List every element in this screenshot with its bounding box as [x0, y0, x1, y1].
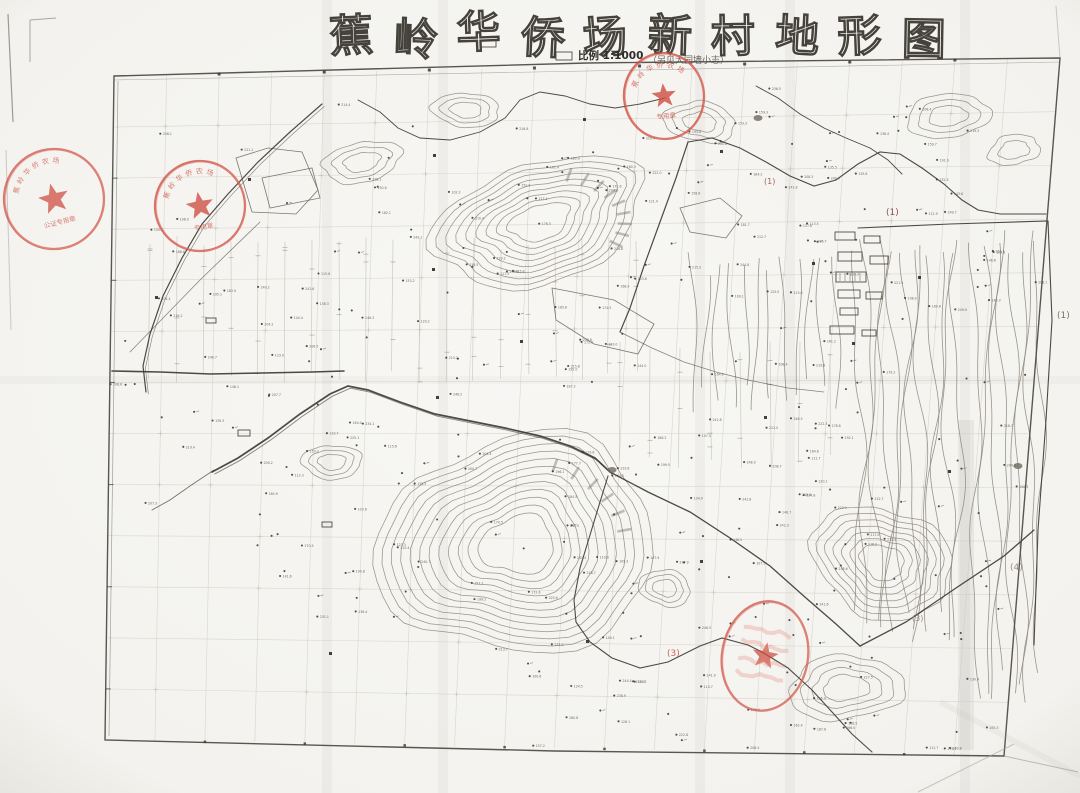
topographic-map-canvas: 183.0144.4143.6215.2120.0222.8103.6247.9… [0, 0, 1080, 793]
svg-text:108.0: 108.0 [180, 217, 189, 221]
solid-mark [432, 268, 435, 271]
svg-text:174.5: 174.5 [602, 306, 611, 310]
scanned-topographic-map-page: 183.0144.4143.6215.2120.0222.8103.6247.9… [0, 0, 1080, 793]
sheet-number-annotation: (1) [764, 177, 775, 186]
border-tick [533, 67, 536, 70]
svg-text:166.9: 166.9 [817, 697, 826, 701]
svg-text:107.9: 107.9 [650, 556, 659, 560]
svg-text:195.1: 195.1 [213, 292, 222, 296]
svg-text:135.8: 135.8 [858, 172, 867, 176]
svg-text:238.6: 238.6 [839, 567, 848, 571]
svg-text:180.8: 180.8 [569, 716, 578, 720]
svg-text:164.6: 164.6 [810, 449, 819, 453]
svg-text:196.1: 196.1 [555, 470, 564, 474]
svg-text:139.3: 139.3 [215, 419, 224, 423]
svg-text:144.4: 144.4 [294, 316, 303, 320]
svg-text:164.0: 164.0 [353, 421, 362, 425]
svg-text:109.3: 109.3 [619, 560, 628, 564]
svg-text:200.7: 200.7 [468, 467, 477, 471]
svg-text:183.9: 183.9 [227, 289, 236, 293]
svg-text:141.6: 141.6 [283, 574, 292, 578]
svg-text:240.2: 240.2 [261, 285, 270, 289]
svg-text:148.1: 148.1 [230, 385, 239, 389]
svg-text:208.4: 208.4 [750, 746, 759, 750]
svg-text:191.9: 191.9 [940, 158, 949, 162]
svg-text:111.7: 111.7 [811, 456, 820, 460]
sheet-number-annotation: (3) [912, 614, 923, 623]
svg-text:177.7: 177.7 [572, 461, 581, 465]
svg-text:137.6: 137.6 [803, 224, 812, 228]
svg-text:188.8: 188.8 [176, 250, 185, 254]
svg-text:121.4: 121.4 [649, 199, 658, 203]
svg-text:244.4: 244.4 [623, 679, 632, 683]
svg-text:169.8: 169.8 [932, 305, 941, 309]
svg-text:225.1: 225.1 [350, 436, 359, 440]
svg-text:241.8: 241.8 [742, 497, 751, 501]
title-character: 图 [901, 14, 946, 66]
svg-text:187.6: 187.6 [817, 727, 826, 731]
svg-text:242.3: 242.3 [780, 524, 789, 528]
svg-text:242.8: 242.8 [713, 418, 722, 422]
svg-text:204.4: 204.4 [161, 297, 170, 301]
svg-text:217.0: 217.0 [870, 533, 879, 537]
svg-text:244.8: 244.8 [740, 263, 749, 267]
solid-mark [436, 396, 439, 399]
svg-text:138.4: 138.4 [880, 132, 889, 136]
svg-text:218.6: 218.6 [802, 493, 811, 497]
svg-text:179.2: 179.2 [886, 370, 895, 374]
border-tick [428, 69, 431, 72]
svg-text:219.4: 219.4 [186, 445, 195, 449]
svg-text:233.0: 233.0 [554, 643, 563, 647]
svg-text:154.5: 154.5 [615, 474, 624, 478]
svg-text:216.8: 216.8 [519, 127, 528, 131]
svg-text:208.3: 208.3 [804, 175, 813, 179]
svg-text:212.0: 212.0 [769, 426, 778, 430]
svg-text:210.4: 210.4 [475, 216, 484, 220]
svg-text:129.2: 129.2 [421, 320, 430, 324]
svg-text:117.4: 117.4 [538, 197, 547, 201]
svg-text:198.3: 198.3 [1019, 485, 1028, 489]
svg-text:178.8: 178.8 [832, 424, 841, 428]
svg-text:116.0: 116.0 [868, 542, 877, 546]
svg-text:108.4: 108.4 [922, 107, 931, 111]
svg-text:115.6: 115.6 [388, 444, 397, 448]
border-tick [953, 59, 956, 62]
svg-text:213.7: 213.7 [499, 647, 508, 651]
svg-text:218.7: 218.7 [1004, 424, 1013, 428]
svg-text:183.9: 183.9 [571, 156, 580, 160]
svg-text:120.1: 120.1 [818, 480, 827, 484]
svg-text:150.6: 150.6 [377, 186, 386, 190]
svg-text:190.8: 190.8 [356, 570, 365, 574]
svg-text:120.0: 120.0 [770, 290, 779, 294]
svg-text:134.0: 134.0 [694, 496, 703, 500]
svg-text:204.6: 204.6 [609, 189, 618, 193]
svg-text:153.3: 153.3 [310, 450, 319, 454]
svg-text:192.1: 192.1 [845, 436, 854, 440]
svg-text:146.6: 146.6 [987, 258, 996, 262]
svg-text:108.9: 108.9 [908, 296, 917, 300]
svg-text:163.4: 163.4 [793, 724, 802, 728]
title-character: 地 [774, 10, 821, 63]
svg-text:248.0: 248.0 [747, 461, 756, 465]
svg-text:222.1: 222.1 [838, 506, 847, 510]
svg-text:241.6: 241.6 [819, 603, 828, 607]
svg-text:181.7: 181.7 [741, 223, 750, 227]
title-character: 岭 [393, 14, 439, 67]
svg-text:215.2: 215.2 [692, 265, 701, 269]
svg-text:215.4: 215.4 [577, 556, 586, 560]
svg-text:135.5: 135.5 [828, 165, 837, 169]
svg-text:172.6: 172.6 [531, 590, 540, 594]
svg-text:135.5: 135.5 [417, 482, 426, 486]
svg-text:153.2: 153.2 [406, 279, 415, 283]
svg-text:204.4: 204.4 [482, 452, 491, 456]
svg-text:112.9: 112.9 [928, 212, 937, 216]
svg-text:231.1: 231.1 [320, 615, 329, 619]
svg-text:129.2: 129.2 [497, 257, 506, 261]
svg-text:110.7: 110.7 [329, 432, 338, 436]
svg-text:246.3: 246.3 [793, 417, 802, 421]
svg-text:143.6: 143.6 [954, 192, 963, 196]
svg-text:223.9: 223.9 [549, 596, 558, 600]
svg-text:241.9: 241.9 [707, 674, 716, 678]
sheet-number-annotation: (3) [667, 649, 680, 659]
solid-mark [329, 652, 332, 655]
solid-mark [583, 118, 586, 121]
border-tick [218, 73, 221, 76]
svg-text:149.3: 149.3 [991, 299, 1000, 303]
svg-text:199.5: 199.5 [661, 463, 670, 467]
svg-text:228.1: 228.1 [372, 177, 381, 181]
svg-text:180.9: 180.9 [269, 492, 278, 496]
svg-text:113.3: 113.3 [295, 473, 304, 477]
crease-vertical [695, 0, 705, 793]
svg-text:193.3: 193.3 [850, 272, 859, 276]
svg-text:238.9: 238.9 [617, 694, 626, 698]
svg-text:204.2: 204.2 [264, 322, 273, 326]
svg-text:129.8: 129.8 [585, 451, 594, 455]
svg-text:108.4: 108.4 [778, 362, 787, 366]
svg-text:227.5: 227.5 [864, 675, 873, 679]
svg-text:151.2: 151.2 [474, 581, 483, 585]
svg-text:123.0: 123.0 [275, 353, 284, 357]
solid-mark [248, 178, 251, 181]
svg-text:236.5: 236.5 [772, 87, 781, 91]
solid-mark [764, 416, 767, 419]
svg-text:179.7: 179.7 [947, 747, 956, 751]
svg-text:124.5: 124.5 [574, 685, 583, 689]
svg-text:184.2: 184.2 [753, 172, 762, 176]
svg-text:249.0: 249.0 [831, 176, 840, 180]
svg-text:249.7: 249.7 [948, 210, 957, 214]
svg-text:188.2: 188.2 [657, 436, 666, 440]
svg-text:153.3: 153.3 [738, 122, 747, 126]
sheet-number-annotation: (1) [886, 208, 899, 218]
title-character: 蕉 [328, 10, 375, 63]
svg-text:219.8: 219.8 [816, 364, 825, 368]
solid-mark [700, 560, 703, 563]
pond-mark [608, 467, 617, 473]
svg-text:136.5: 136.5 [469, 263, 478, 267]
solid-mark [586, 640, 589, 643]
svg-text:159.3: 159.3 [759, 111, 768, 115]
solid-mark [720, 150, 723, 153]
svg-text:242.6: 242.6 [305, 287, 314, 291]
border-tick [323, 71, 326, 74]
svg-text:126.1: 126.1 [621, 720, 630, 724]
svg-text:174.5: 174.5 [494, 520, 503, 524]
svg-text:207.7: 207.7 [272, 393, 281, 397]
solid-mark [155, 296, 158, 299]
svg-text:184.5: 184.5 [568, 495, 577, 499]
svg-text:195.0: 195.0 [568, 368, 577, 372]
crease-vertical [438, 0, 448, 793]
svg-text:249.9: 249.9 [958, 308, 967, 312]
svg-text:152.2: 152.2 [521, 183, 530, 187]
svg-text:158.3: 158.3 [320, 302, 329, 306]
svg-text:164.6: 164.6 [715, 373, 724, 377]
svg-text:103.6: 103.6 [638, 277, 647, 281]
svg-text:108.6: 108.6 [113, 383, 122, 387]
svg-text:216.8: 216.8 [614, 247, 623, 251]
svg-text:222.8: 222.8 [679, 733, 688, 737]
svg-text:109.5: 109.5 [996, 251, 1005, 255]
svg-text:111.7: 111.7 [929, 746, 938, 750]
svg-text:199.2: 199.2 [477, 598, 486, 602]
svg-text:233.8: 233.8 [620, 467, 629, 471]
svg-text:132.5: 132.5 [939, 178, 948, 182]
svg-text:219.9: 219.9 [887, 537, 896, 541]
svg-text:107.5: 107.5 [756, 562, 765, 566]
svg-text:183.0: 183.0 [608, 342, 617, 346]
svg-text:149.1: 149.1 [606, 636, 615, 640]
svg-text:246.5: 246.5 [702, 626, 711, 630]
svg-text:236.6: 236.6 [509, 270, 518, 274]
svg-text:214.4: 214.4 [341, 103, 350, 107]
solid-mark [918, 276, 921, 279]
svg-text:159.7: 159.7 [928, 142, 937, 146]
svg-text:119.3: 119.3 [970, 129, 979, 133]
svg-text:241.8: 241.8 [788, 186, 797, 190]
svg-text:130.4: 130.4 [970, 677, 979, 681]
svg-text:146.0: 146.0 [733, 538, 742, 542]
svg-text:146.7: 146.7 [782, 511, 791, 515]
svg-text:153.3: 153.3 [636, 680, 645, 684]
svg-text:157.2: 157.2 [536, 744, 545, 748]
svg-text:206.5: 206.5 [309, 345, 318, 349]
svg-text:185.8: 185.8 [558, 306, 567, 310]
svg-text:172.0: 172.0 [584, 340, 593, 344]
svg-text:176.5: 176.5 [542, 222, 551, 226]
svg-text:200.2: 200.2 [264, 461, 273, 465]
svg-text:200.8: 200.8 [718, 142, 727, 146]
sheet-number-annotation: (1) [1057, 311, 1070, 321]
sheet-number-annotation: (4) [1010, 563, 1023, 573]
svg-text:100.6: 100.6 [532, 675, 541, 679]
svg-text:207.3: 207.3 [148, 501, 157, 505]
svg-text:204.8: 204.8 [1007, 463, 1016, 467]
svg-text:221.5: 221.5 [894, 281, 903, 285]
svg-text:144.0: 144.0 [637, 364, 646, 368]
svg-text:161.2: 161.2 [827, 340, 836, 344]
solid-mark [433, 154, 436, 157]
svg-text:102.3: 102.3 [451, 190, 460, 194]
svg-text:213.0: 213.0 [793, 291, 802, 295]
solid-mark [852, 342, 855, 345]
svg-text:136.4: 136.4 [358, 610, 367, 614]
svg-text:110.7: 110.7 [704, 685, 713, 689]
title-character: 华 [456, 6, 502, 59]
svg-text:166.0: 166.0 [846, 726, 855, 730]
svg-text:107.5: 107.5 [702, 434, 711, 438]
pond-mark [754, 115, 763, 121]
svg-text:240.7: 240.7 [421, 560, 430, 564]
svg-text:234.1: 234.1 [365, 422, 374, 426]
svg-text:170.5: 170.5 [304, 544, 313, 548]
svg-text:101.4: 101.4 [550, 165, 559, 169]
svg-text:196.7: 196.7 [817, 240, 826, 244]
svg-text:218.2: 218.2 [173, 314, 182, 318]
solid-mark [812, 262, 815, 265]
svg-text:215.2: 215.2 [449, 356, 458, 360]
solid-mark [948, 470, 951, 473]
svg-text:109.1: 109.1 [735, 294, 744, 298]
svg-text:248.7: 248.7 [208, 355, 217, 359]
svg-text:187.2: 187.2 [567, 384, 576, 388]
border-tick [743, 63, 746, 66]
svg-text:103.6: 103.6 [358, 507, 367, 511]
svg-text:146.3: 146.3 [365, 316, 374, 320]
title-character: 侨 [519, 12, 567, 65]
svg-text:222.7: 222.7 [874, 497, 883, 501]
svg-text:180.3: 180.3 [627, 165, 636, 169]
svg-text:115.6: 115.6 [321, 272, 330, 276]
svg-text:212.7: 212.7 [757, 235, 766, 239]
svg-text:193.8: 193.8 [692, 130, 701, 134]
svg-text:118.5: 118.5 [848, 722, 857, 726]
scale-label: 比例 1:1000 [578, 49, 643, 62]
svg-text:208.7: 208.7 [772, 464, 781, 468]
svg-text:221.1: 221.1 [244, 148, 253, 152]
svg-text:243.1: 243.1 [413, 235, 422, 239]
svg-text:218.7: 218.7 [587, 571, 596, 575]
svg-text:168.9: 168.9 [620, 284, 629, 288]
svg-text:246.2: 246.2 [453, 392, 462, 396]
svg-text:222.0: 222.0 [652, 171, 661, 175]
svg-text:158.6: 158.6 [691, 191, 700, 195]
svg-text:182.1: 182.1 [382, 211, 391, 215]
svg-text:222.3: 222.3 [818, 422, 827, 426]
solid-mark [520, 340, 523, 343]
svg-text:110.8: 110.8 [600, 556, 609, 560]
svg-text:117.5: 117.5 [500, 272, 509, 276]
title-character: 形 [837, 10, 883, 63]
svg-text:208.1: 208.1 [163, 132, 172, 136]
svg-text:110.4: 110.4 [400, 546, 409, 550]
